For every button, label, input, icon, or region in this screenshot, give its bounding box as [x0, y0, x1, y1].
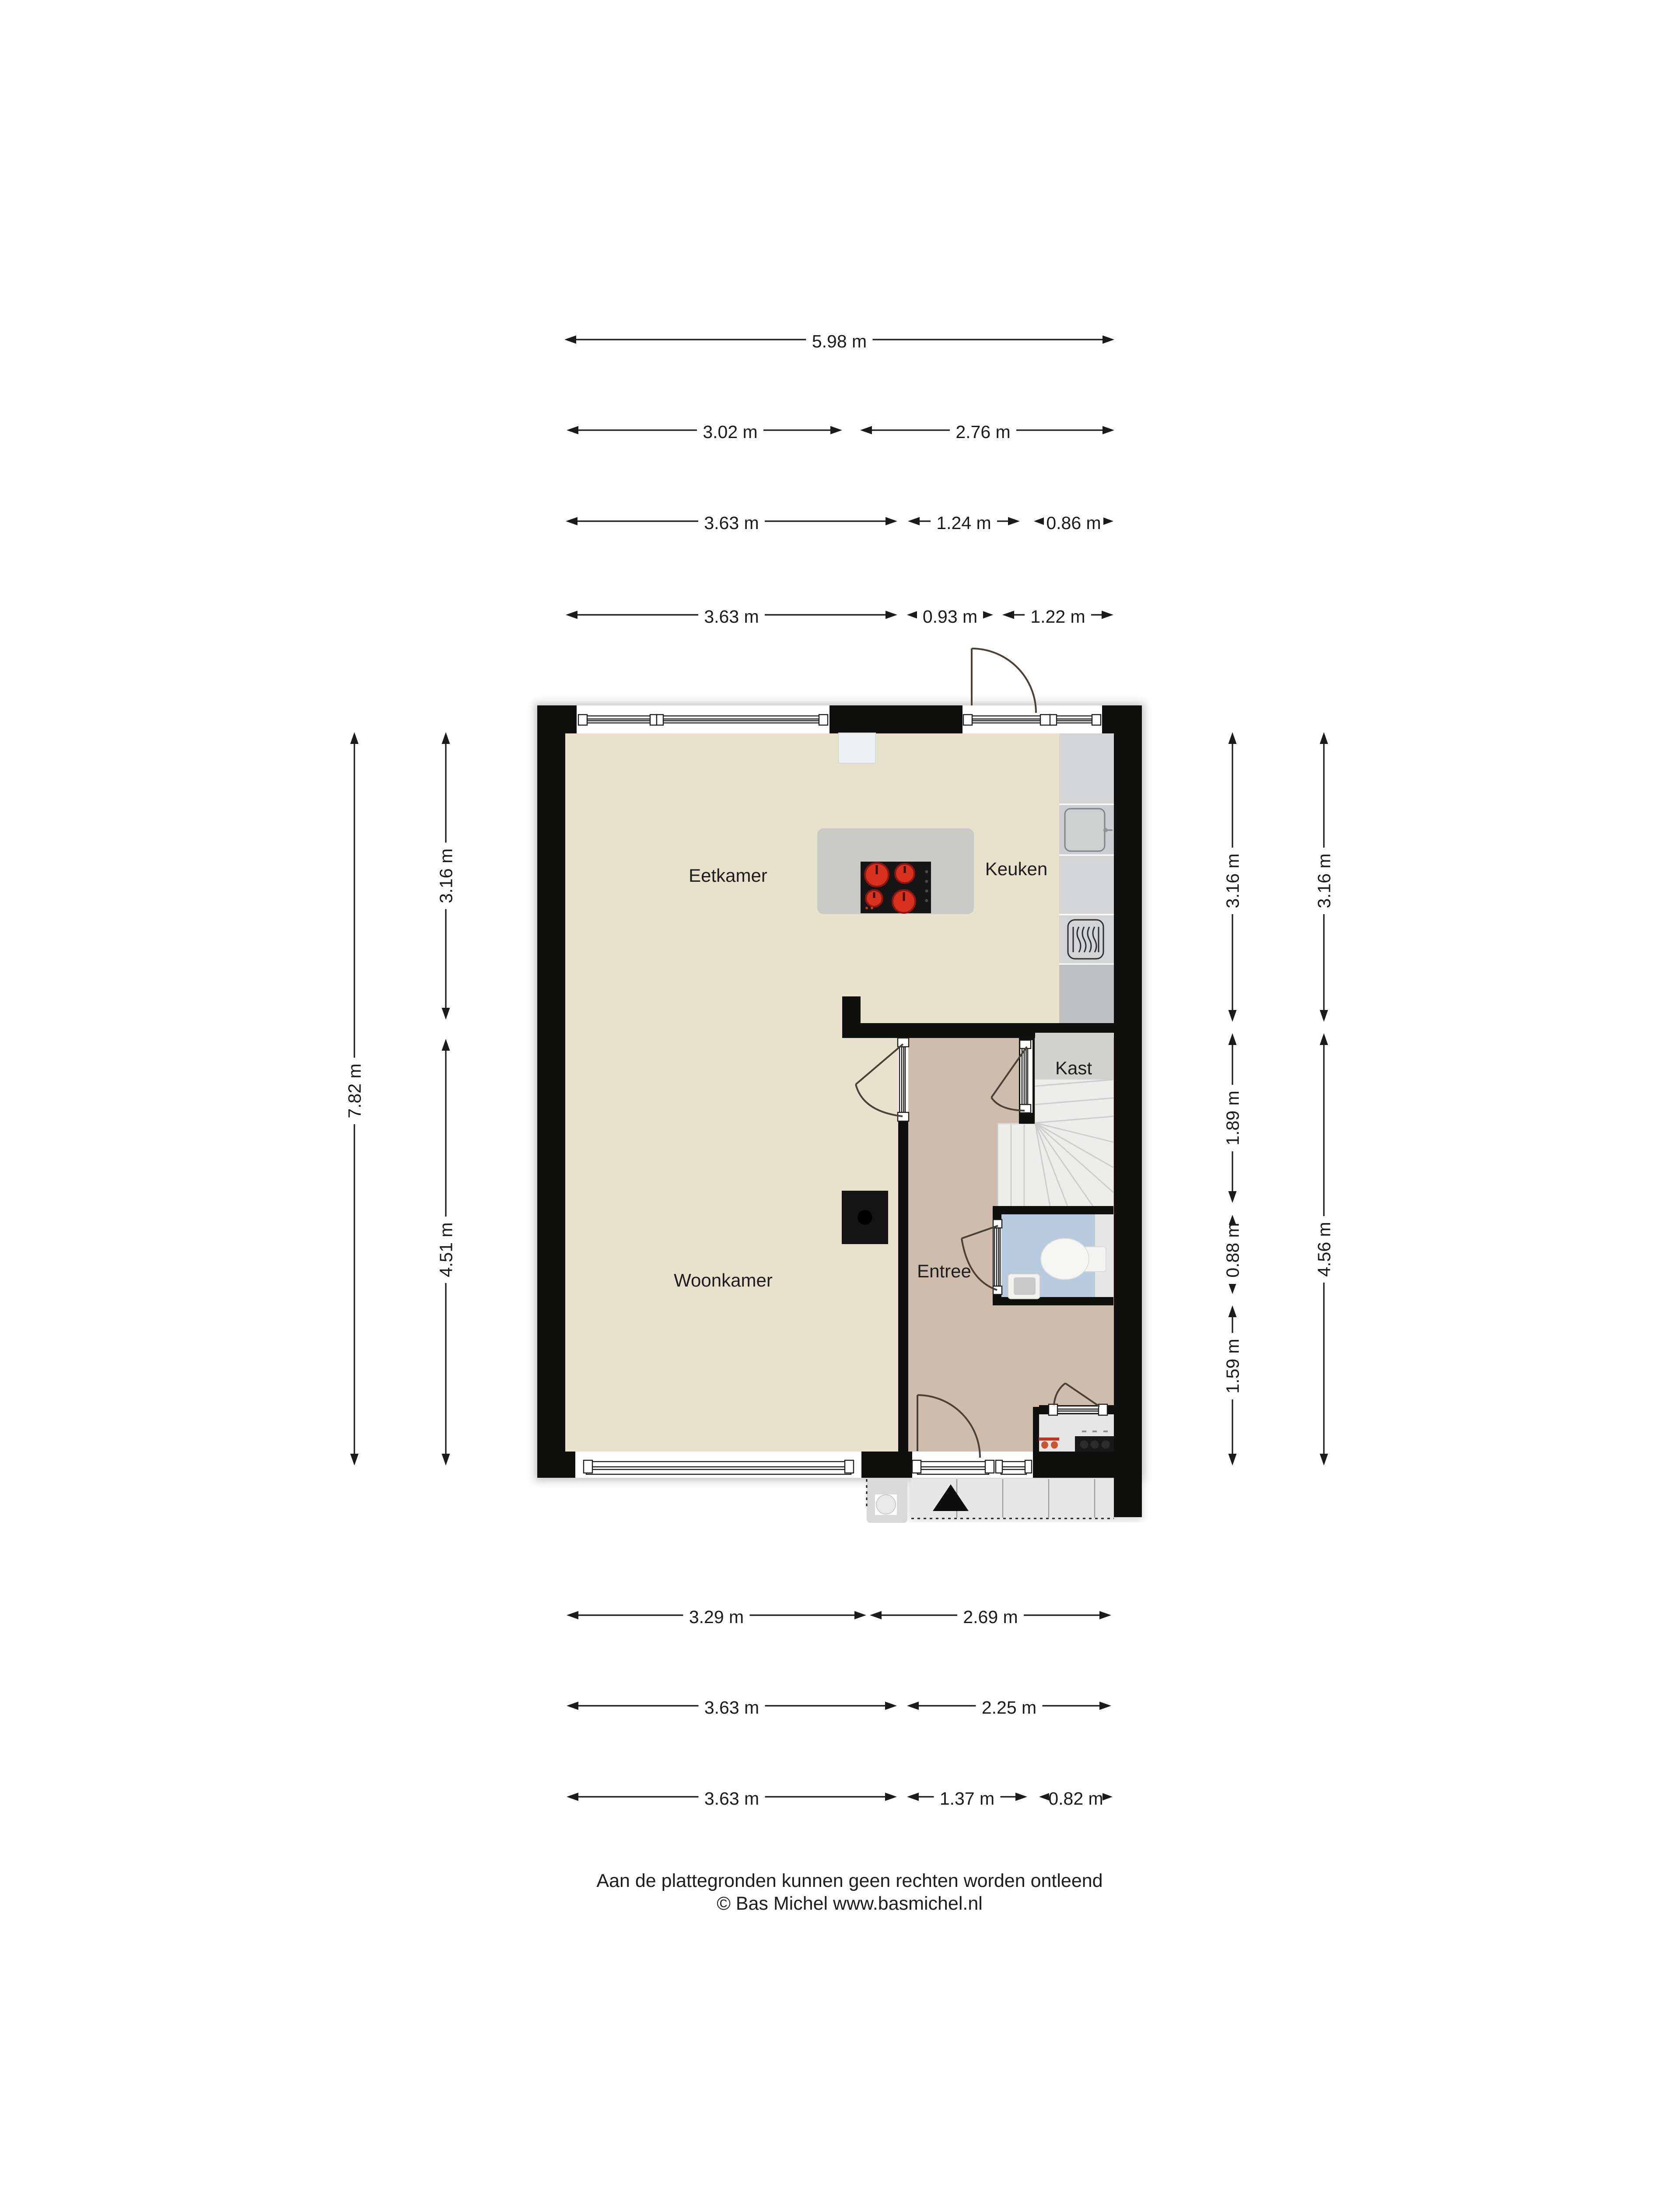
svg-text:3.16 m: 3.16 m	[1223, 853, 1243, 908]
svg-text:3.63 m: 3.63 m	[704, 1788, 759, 1809]
svg-text:Woonkamer: Woonkamer	[674, 1270, 773, 1290]
svg-text:4.56 m: 4.56 m	[1314, 1222, 1334, 1276]
svg-text:1.37 m: 1.37 m	[940, 1788, 994, 1809]
svg-text:4.51 m: 4.51 m	[436, 1222, 456, 1277]
svg-text:3.02 m: 3.02 m	[703, 422, 757, 442]
svg-text:5.98 m: 5.98 m	[812, 331, 867, 351]
svg-text:Keuken: Keuken	[985, 859, 1047, 879]
svg-text:7.82 m: 7.82 m	[345, 1063, 365, 1118]
svg-text:0.82 m: 0.82 m	[1048, 1788, 1103, 1809]
svg-text:3.63 m: 3.63 m	[704, 607, 759, 627]
svg-text:2.69 m: 2.69 m	[963, 1607, 1018, 1627]
svg-text:1.89 m: 1.89 m	[1223, 1090, 1243, 1145]
svg-text:Aan de plattegronden kunnen ge: Aan de plattegronden kunnen geen rechten…	[596, 1870, 1102, 1891]
svg-text:1.22 m: 1.22 m	[1030, 607, 1085, 627]
svg-text:Kast: Kast	[1055, 1058, 1092, 1078]
svg-text:0.93 m: 0.93 m	[923, 607, 977, 627]
svg-text:0.88 m: 0.88 m	[1223, 1223, 1243, 1277]
svg-text:3.16 m: 3.16 m	[1314, 853, 1334, 908]
svg-text:2.76 m: 2.76 m	[955, 422, 1010, 442]
svg-text:3.16 m: 3.16 m	[436, 849, 456, 903]
svg-text:3.63 m: 3.63 m	[704, 1697, 759, 1718]
svg-text:Entree: Entree	[917, 1261, 971, 1281]
svg-text:2.25 m: 2.25 m	[982, 1697, 1036, 1718]
svg-text:Eetkamer: Eetkamer	[689, 865, 767, 886]
svg-text:3.63 m: 3.63 m	[704, 513, 759, 533]
svg-text:3.29 m: 3.29 m	[689, 1607, 744, 1627]
svg-text:1.24 m: 1.24 m	[936, 513, 991, 533]
svg-text:0.86 m: 0.86 m	[1046, 513, 1101, 533]
svg-text:© Bas Michel www.basmichel.nl: © Bas Michel www.basmichel.nl	[717, 1893, 983, 1914]
svg-text:1.59 m: 1.59 m	[1223, 1339, 1243, 1393]
